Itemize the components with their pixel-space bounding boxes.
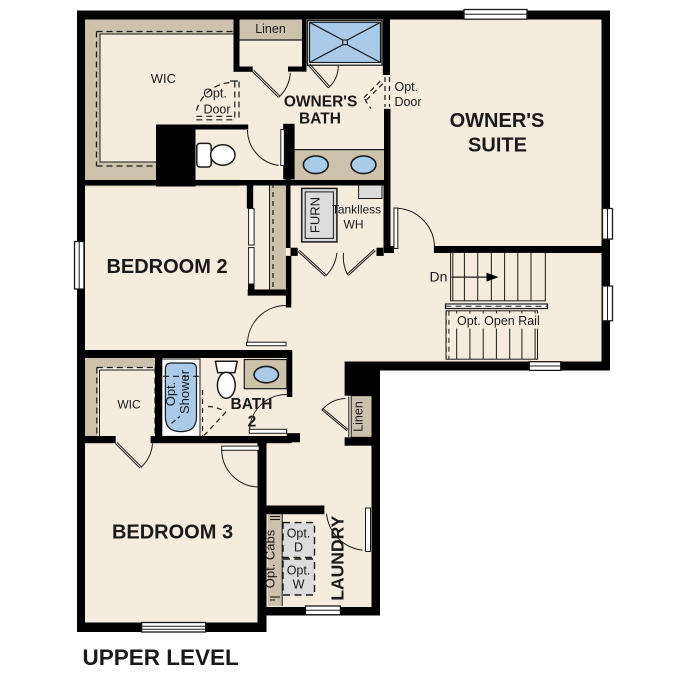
svg-text:Linen: Linen	[352, 401, 366, 432]
svg-text:Opt.: Opt.	[394, 80, 418, 94]
svg-text:WH: WH	[344, 217, 364, 231]
svg-text:Opt. Open Rail: Opt. Open Rail	[457, 314, 540, 328]
svg-text:BEDROOM 2: BEDROOM 2	[106, 256, 227, 278]
svg-text:Linen: Linen	[255, 22, 286, 36]
svg-text:Shower: Shower	[177, 369, 192, 414]
svg-text:LAUNDRY: LAUNDRY	[328, 515, 348, 600]
svg-text:OWNER'S: OWNER'S	[450, 110, 545, 132]
svg-text:Opt.: Opt.	[287, 527, 311, 541]
svg-text:Dn: Dn	[430, 268, 448, 284]
svg-text:2: 2	[248, 413, 257, 430]
svg-text:Opt. Cabs: Opt. Cabs	[263, 529, 278, 588]
svg-text:BATH: BATH	[299, 110, 341, 127]
svg-text:Opt.: Opt.	[287, 564, 311, 578]
svg-text:WIC: WIC	[117, 398, 141, 412]
svg-text:BEDROOM 3: BEDROOM 3	[112, 522, 233, 544]
svg-text:Opt.: Opt.	[203, 87, 227, 101]
svg-text:Tanklless: Tanklless	[332, 203, 381, 217]
svg-text:FURN: FURN	[308, 197, 323, 233]
svg-text:WIC: WIC	[151, 71, 176, 86]
svg-text:Opt.: Opt.	[163, 382, 178, 407]
svg-text:BATH: BATH	[231, 396, 273, 413]
svg-text:Door: Door	[394, 95, 421, 109]
svg-text:UPPER LEVEL: UPPER LEVEL	[83, 645, 240, 670]
svg-text:SUITE: SUITE	[468, 135, 527, 157]
svg-text:W: W	[293, 578, 305, 592]
svg-text:OWNER'S: OWNER'S	[284, 94, 357, 111]
svg-text:D: D	[294, 541, 303, 555]
svg-text:Door: Door	[203, 103, 230, 117]
